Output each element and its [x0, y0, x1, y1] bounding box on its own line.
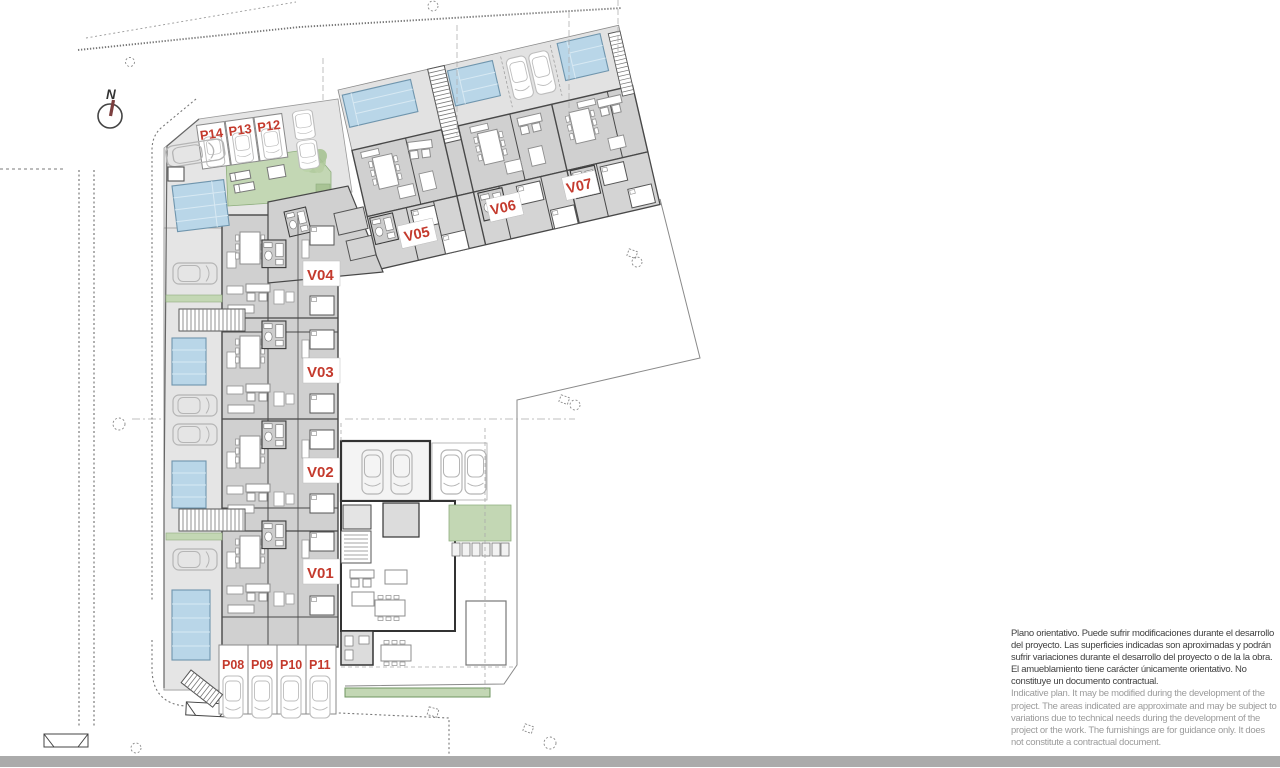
svg-text:P13: P13 — [228, 121, 253, 139]
svg-text:P11: P11 — [309, 658, 331, 672]
svg-text:N: N — [106, 87, 116, 102]
svg-text:P09: P09 — [251, 658, 273, 672]
svg-text:P10: P10 — [280, 658, 302, 672]
svg-text:P12: P12 — [256, 117, 281, 135]
svg-text:V02: V02 — [307, 464, 334, 481]
svg-text:V03: V03 — [307, 364, 334, 381]
svg-text:V04: V04 — [307, 267, 334, 284]
svg-text:V01: V01 — [307, 565, 334, 582]
svg-text:P08: P08 — [222, 658, 244, 672]
